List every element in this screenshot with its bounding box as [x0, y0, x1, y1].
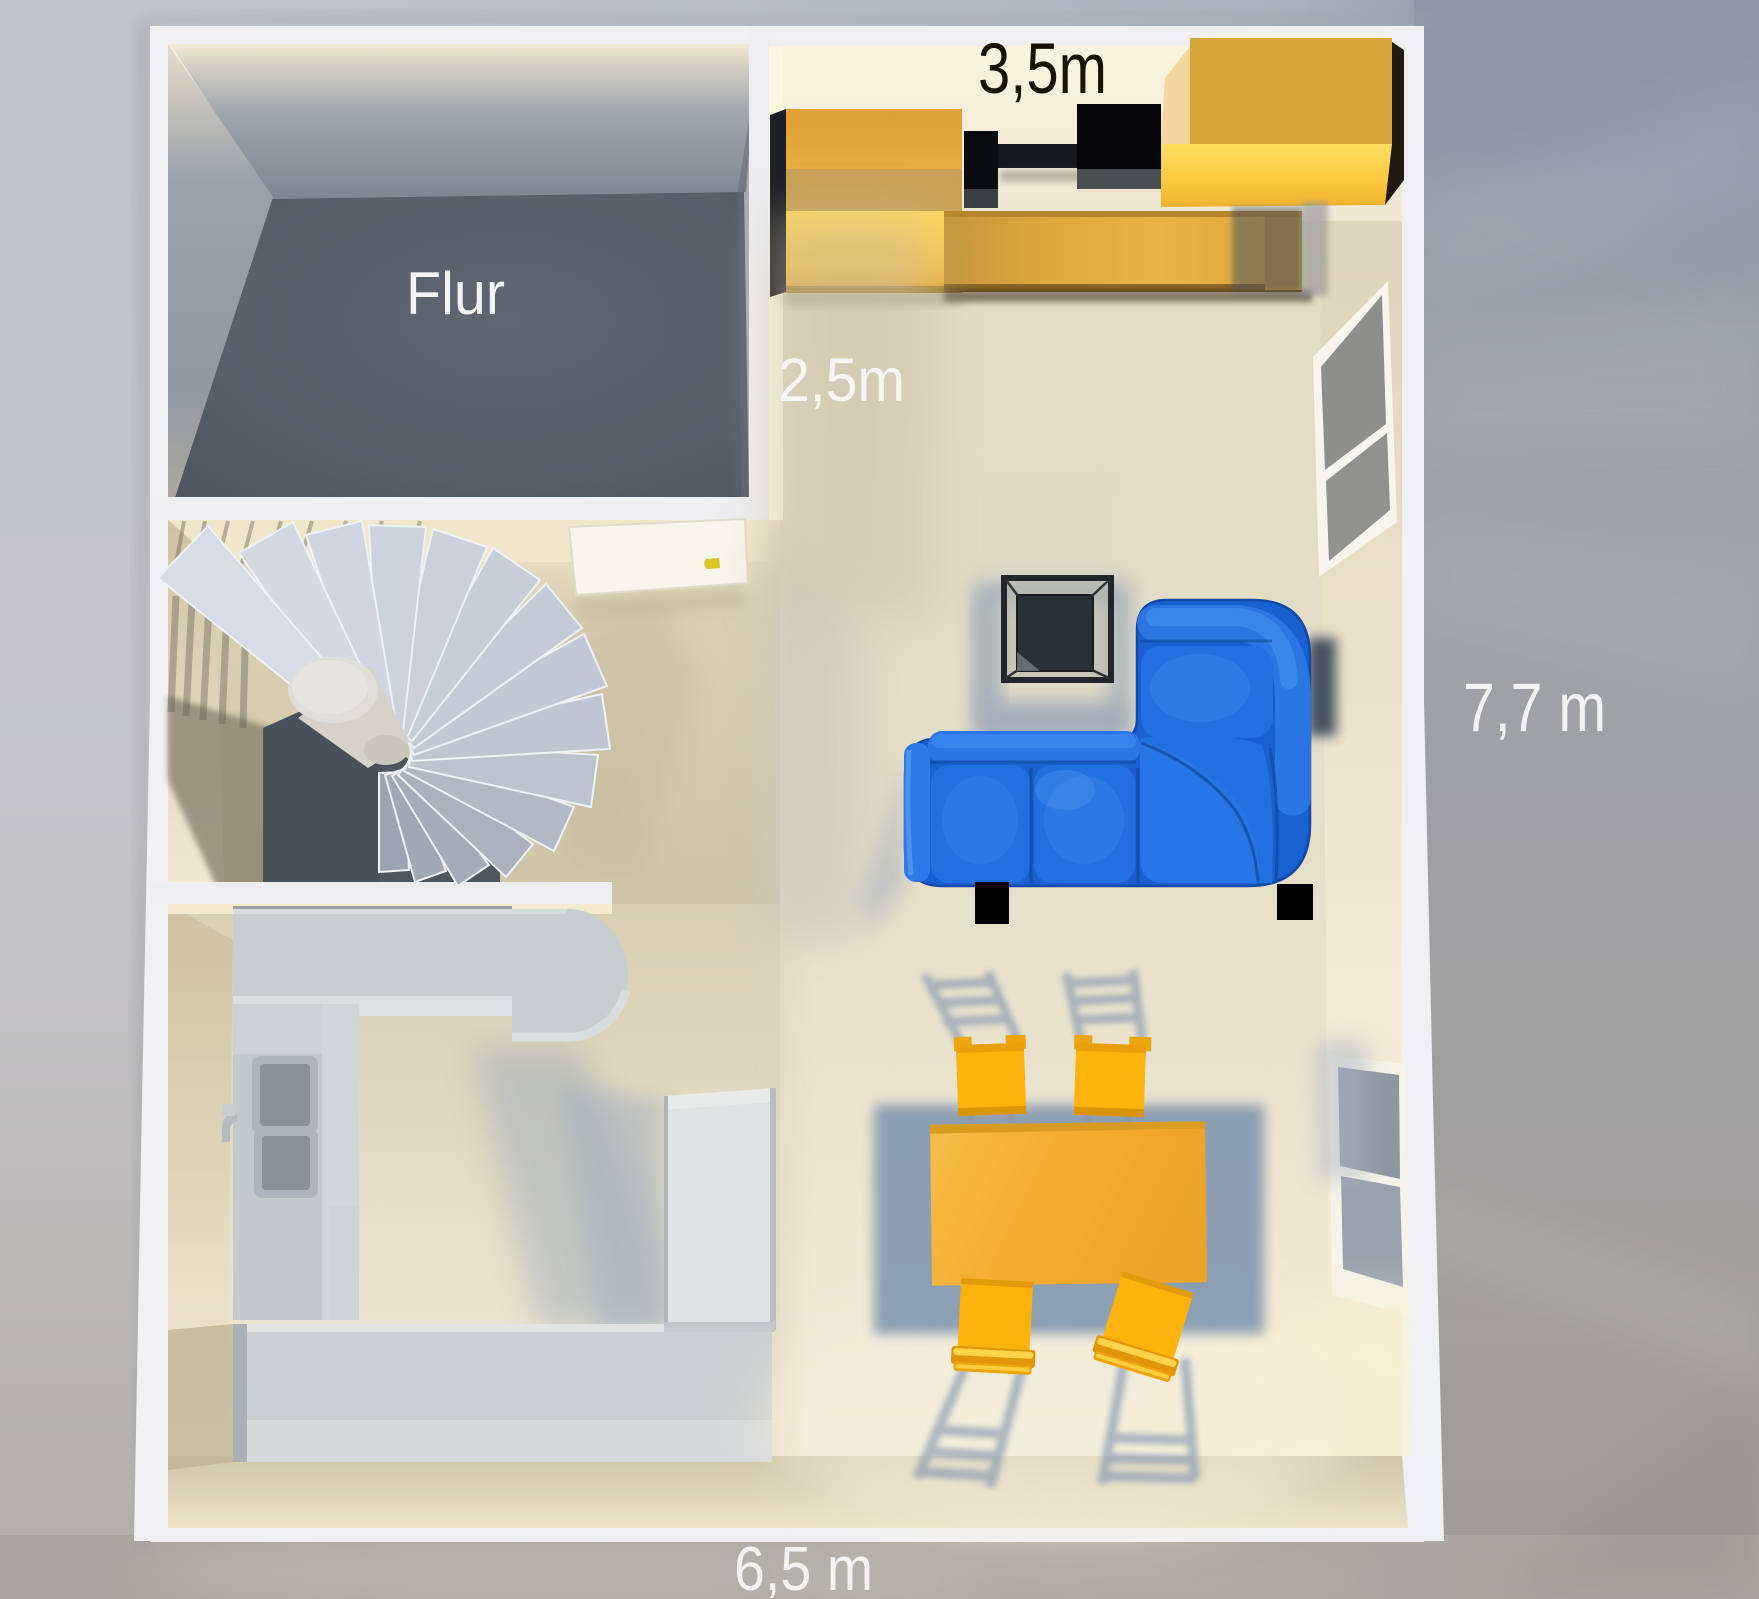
svg-text:2,5m: 2,5m [778, 346, 905, 414]
svg-text:Flur: Flur [406, 260, 505, 327]
svg-text:7,7 m: 7,7 m [1463, 669, 1606, 746]
svg-text:3,5m: 3,5m [978, 30, 1107, 109]
svg-text:6,5 m: 6,5 m [734, 1535, 873, 1599]
